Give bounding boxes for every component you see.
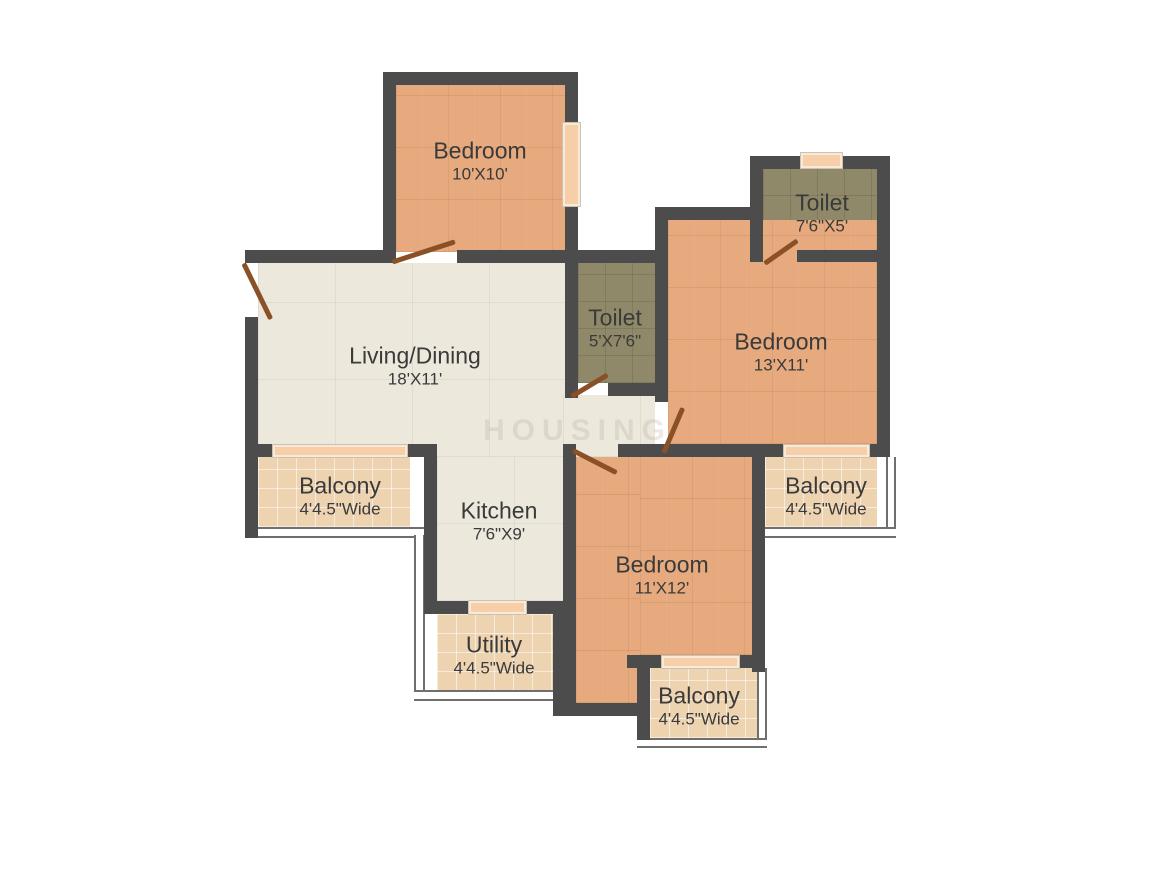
balcony-right-side-railing xyxy=(886,457,896,535)
room-label-living-dining: Living/Dining 18'X11' xyxy=(349,344,481,389)
room-label-utility: Utility 4'4.5"Wide xyxy=(453,633,534,678)
wall-bedroom-top-left xyxy=(383,72,396,263)
balcony-left-railing xyxy=(245,527,425,538)
window-balcony-bottom xyxy=(661,655,740,669)
room-name: Kitchen xyxy=(461,499,538,525)
room-dims: 4'4.5"Wide xyxy=(785,499,867,518)
floor-plan-page: HOUSING Bedroom 10'X10' Toilet 7'6"X5' B… xyxy=(0,0,1160,870)
window-bedroom-top xyxy=(562,122,581,207)
room-name: Living/Dining xyxy=(349,344,481,370)
room-label-toilet-top-right: Toilet 7'6"X5' xyxy=(795,191,849,236)
room-name: Bedroom xyxy=(615,553,708,579)
room-label-balcony-right: Balcony 4'4.5"Wide xyxy=(785,474,867,519)
room-dims: 5'X7'6" xyxy=(588,331,642,350)
room-label-bedroom-top: Bedroom 10'X10' xyxy=(433,139,526,184)
room-name: Toilet xyxy=(795,191,849,217)
wall-living-top-right xyxy=(457,250,668,263)
room-name: Balcony xyxy=(658,684,740,710)
room-dims: 10'X10' xyxy=(433,164,526,183)
floor-plan: HOUSING Bedroom 10'X10' Toilet 7'6"X5' B… xyxy=(0,0,1160,870)
room-dims: 13'X11' xyxy=(734,355,827,374)
wall-bedroom-top-right xyxy=(565,72,578,398)
wall-bedroom-bottom-bottomleft xyxy=(553,703,648,716)
room-name: Bedroom xyxy=(433,139,526,165)
wall-utility-right xyxy=(553,601,565,713)
room-label-bedroom-right: Bedroom 13'X11' xyxy=(734,330,827,375)
window-utility xyxy=(468,600,527,615)
utility-bottom-railing xyxy=(414,690,556,701)
room-name: Utility xyxy=(453,633,534,659)
window-balcony-left xyxy=(272,444,408,458)
room-label-balcony-bottom: Balcony 4'4.5"Wide xyxy=(658,684,740,729)
room-dims: 7'6"X9' xyxy=(461,524,538,543)
wall-kitchen-left xyxy=(424,444,437,614)
room-dims: 4'4.5"Wide xyxy=(453,658,534,677)
window-toilet-top-right xyxy=(800,152,843,169)
wall-bedroom-right-left xyxy=(655,207,668,402)
room-dims: 4'4.5"Wide xyxy=(299,499,381,518)
balcony-bottom-bottom-railing xyxy=(637,738,767,748)
wall-bedroom-top-top xyxy=(383,72,578,85)
room-name: Balcony xyxy=(299,474,381,500)
room-label-balcony-left: Balcony 4'4.5"Wide xyxy=(299,474,381,519)
room-dims: 18'X11' xyxy=(349,369,481,388)
room-label-toilet-middle: Toilet 5'X7'6" xyxy=(588,306,642,351)
wall-toilet-middle-bottom xyxy=(608,383,655,396)
window-balcony-right xyxy=(783,444,870,458)
room-name: Toilet xyxy=(588,306,642,332)
wall-outer-right xyxy=(877,156,890,457)
room-name: Balcony xyxy=(785,474,867,500)
wall-balcony-bottom-left xyxy=(637,655,650,740)
wall-living-left xyxy=(245,317,258,538)
watermark: HOUSING xyxy=(483,414,672,448)
room-label-kitchen: Kitchen 7'6"X9' xyxy=(461,499,538,544)
wall-bedroom-bottom-right xyxy=(752,444,765,672)
room-label-bedroom-bottom: Bedroom 11'X12' xyxy=(615,553,708,598)
room-dims: 11'X12' xyxy=(615,578,708,597)
room-name: Bedroom xyxy=(734,330,827,356)
room-dims: 7'6"X5' xyxy=(795,216,849,235)
room-dims: 4'4.5"Wide xyxy=(658,709,740,728)
wall-living-top-left xyxy=(245,250,396,263)
balcony-bottom-side-railing xyxy=(757,668,767,746)
wall-bedroom-right-top xyxy=(655,207,763,220)
balcony-right-bottom-railing xyxy=(765,527,896,538)
